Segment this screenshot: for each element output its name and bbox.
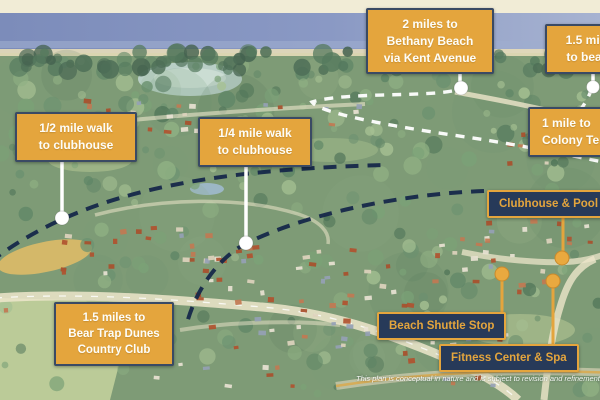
house <box>435 253 440 258</box>
tree <box>299 78 308 87</box>
tree <box>9 189 16 196</box>
house <box>491 258 496 263</box>
house <box>317 250 322 254</box>
house <box>321 279 325 284</box>
house <box>154 376 160 380</box>
tree <box>420 301 429 310</box>
house <box>268 297 274 302</box>
house <box>4 308 9 313</box>
tree <box>426 228 438 240</box>
house <box>530 219 537 224</box>
house <box>365 331 370 336</box>
tree <box>436 73 451 88</box>
house <box>179 233 184 238</box>
house <box>452 251 457 255</box>
tree <box>531 164 543 176</box>
house <box>341 336 348 341</box>
house <box>353 110 359 115</box>
house <box>347 294 354 298</box>
house <box>346 324 353 329</box>
house <box>120 229 127 235</box>
house <box>84 241 91 244</box>
tree <box>72 162 79 169</box>
tree <box>197 310 209 322</box>
house <box>343 272 348 276</box>
tree <box>246 46 257 57</box>
tree <box>519 87 530 98</box>
tree <box>510 124 517 131</box>
tree <box>46 55 56 65</box>
tree <box>402 239 415 252</box>
tree <box>494 49 504 59</box>
house <box>557 221 562 226</box>
house <box>84 99 92 104</box>
tree <box>349 134 359 144</box>
house <box>185 121 192 126</box>
tree <box>75 55 93 73</box>
tree <box>314 140 324 150</box>
tree <box>100 60 119 79</box>
house <box>178 363 183 367</box>
tree <box>419 293 428 302</box>
house <box>208 256 215 261</box>
house <box>183 257 190 262</box>
house <box>299 299 304 303</box>
tree <box>516 319 528 331</box>
tree <box>170 251 179 260</box>
tree <box>288 346 302 360</box>
tree <box>294 59 311 76</box>
house <box>176 227 183 231</box>
house <box>234 346 239 350</box>
house <box>364 327 369 331</box>
house <box>209 279 214 282</box>
pin-dot-bethany <box>454 81 468 95</box>
house <box>241 259 246 264</box>
house <box>278 105 283 109</box>
house <box>103 271 107 275</box>
house <box>302 335 308 339</box>
tree <box>254 255 264 265</box>
tree <box>535 316 541 322</box>
tree <box>282 180 297 195</box>
house <box>403 351 408 356</box>
tree <box>404 157 422 175</box>
tree <box>461 151 477 167</box>
tree <box>132 257 145 270</box>
house <box>205 233 212 238</box>
house <box>151 226 157 230</box>
sky <box>0 0 600 15</box>
house <box>148 127 153 131</box>
house <box>522 227 527 232</box>
tree <box>422 107 435 120</box>
pin-dot-beach <box>587 81 600 94</box>
tree <box>103 176 118 191</box>
house <box>567 237 572 242</box>
tree <box>334 153 345 164</box>
house <box>341 343 346 347</box>
house <box>252 245 259 250</box>
tree <box>315 76 322 83</box>
house <box>190 258 195 262</box>
tree <box>132 45 147 60</box>
tree <box>260 46 272 58</box>
house <box>331 322 336 326</box>
house <box>182 113 187 116</box>
tree <box>370 124 383 137</box>
house <box>258 331 266 336</box>
house <box>330 303 336 308</box>
tree <box>450 273 466 289</box>
label-quarter-mile-walk: 1/4 mile walk to clubhouse <box>198 117 312 167</box>
house <box>356 104 362 109</box>
house <box>545 161 549 164</box>
house <box>324 276 330 280</box>
watercolor-blob <box>323 175 399 251</box>
label-fitness-spa: Fitness Center & Spa <box>439 344 579 372</box>
tree <box>443 237 457 251</box>
house <box>313 314 319 318</box>
tree <box>210 166 217 173</box>
tree <box>254 70 262 78</box>
tree <box>439 295 447 303</box>
house <box>490 384 495 388</box>
tree <box>98 275 111 288</box>
house <box>136 229 142 234</box>
tree <box>381 74 389 82</box>
tree <box>444 269 450 275</box>
house <box>473 280 480 284</box>
tree <box>78 91 86 99</box>
tree <box>120 256 132 268</box>
tree <box>323 215 335 227</box>
tree <box>491 128 497 134</box>
tree <box>306 354 323 371</box>
tree <box>202 201 219 218</box>
tree <box>154 148 165 159</box>
label-colony-tennis-distance: 1 mile to Colony Tennis <box>528 107 600 157</box>
tree <box>80 238 94 252</box>
house <box>203 366 210 370</box>
house <box>262 365 268 370</box>
house <box>109 264 115 269</box>
tree <box>231 253 239 261</box>
tree <box>118 96 134 112</box>
house <box>386 264 391 269</box>
house <box>287 340 295 346</box>
tree <box>236 90 249 103</box>
tree <box>84 176 93 185</box>
tree <box>343 47 353 57</box>
tree <box>373 166 389 182</box>
house <box>189 104 196 109</box>
house <box>191 252 196 257</box>
house <box>430 341 434 345</box>
pin-dot-half-mile <box>55 211 69 225</box>
tree <box>319 254 333 268</box>
tree <box>338 75 351 88</box>
tree <box>389 74 404 89</box>
house <box>540 269 545 274</box>
label-beach-shuttle: Beach Shuttle Stop <box>377 312 506 340</box>
house <box>209 325 217 330</box>
tree <box>233 63 246 76</box>
house <box>62 269 66 274</box>
house <box>290 384 294 388</box>
tree <box>558 157 569 168</box>
house <box>228 286 232 291</box>
tree <box>30 180 39 189</box>
house <box>247 253 253 258</box>
tree <box>118 62 132 76</box>
house <box>260 290 265 296</box>
tree <box>346 191 359 204</box>
tree <box>401 291 414 304</box>
tree <box>300 384 306 390</box>
house <box>379 284 386 289</box>
house <box>584 224 589 228</box>
tree <box>141 81 152 92</box>
tree <box>222 335 236 349</box>
house <box>296 325 301 329</box>
house <box>489 230 495 234</box>
house <box>181 127 189 132</box>
tree <box>199 348 215 364</box>
tree <box>132 58 151 77</box>
tree <box>16 344 26 354</box>
label-clubhouse-pool: Clubhouse & Pool <box>487 190 600 218</box>
tree <box>155 76 171 92</box>
tree <box>368 249 384 265</box>
house <box>269 329 274 333</box>
house <box>546 238 552 243</box>
house <box>342 301 348 306</box>
house <box>263 103 268 107</box>
tree <box>66 60 74 68</box>
tree <box>365 357 377 369</box>
tree <box>33 54 46 67</box>
house <box>190 243 195 248</box>
house <box>483 250 489 255</box>
tree <box>394 228 405 239</box>
tree <box>451 204 463 216</box>
house <box>137 101 142 105</box>
tree <box>265 88 279 102</box>
tree <box>533 63 543 73</box>
tree <box>214 76 221 83</box>
house <box>364 296 372 301</box>
tree <box>154 231 167 244</box>
house <box>510 254 515 257</box>
tree <box>164 122 179 137</box>
house <box>87 104 92 110</box>
house <box>349 248 356 252</box>
label-bethany-beach-distance: 2 miles to Bethany Beach via Kent Avenue <box>366 8 494 74</box>
house <box>485 239 490 243</box>
label-bear-trap-distance: 1.5 miles to Bear Trap Dunes Country Clu… <box>54 302 174 366</box>
house <box>521 132 525 137</box>
tree <box>157 161 176 180</box>
disclaimer-text: This plan is conceptual in nature and is… <box>356 374 600 383</box>
house <box>203 269 209 274</box>
tree <box>398 130 406 138</box>
house <box>216 258 220 261</box>
house <box>275 365 280 370</box>
pin-dot-quarter-mile <box>239 236 253 250</box>
tree <box>217 82 226 91</box>
tree <box>322 52 342 72</box>
tree <box>188 57 203 72</box>
tree <box>483 110 490 117</box>
tree <box>218 91 235 108</box>
house <box>507 161 513 166</box>
tree <box>314 390 322 398</box>
house <box>217 278 223 282</box>
house <box>588 241 593 244</box>
tree <box>364 344 378 358</box>
amenity-dot-fitness <box>546 274 560 288</box>
tree <box>570 250 579 259</box>
house <box>167 114 174 118</box>
tree <box>201 49 218 66</box>
tree <box>151 60 165 74</box>
tree <box>399 269 406 276</box>
house <box>343 318 351 323</box>
house <box>364 270 371 274</box>
house <box>462 267 468 272</box>
tree <box>53 75 62 84</box>
amenity-dot-shuttle <box>495 267 509 281</box>
tree <box>131 91 139 99</box>
label-half-mile-walk: 1/2 mile walk to clubhouse <box>15 112 137 162</box>
house <box>62 240 68 245</box>
house <box>517 290 522 295</box>
house <box>519 283 526 288</box>
tree <box>551 159 558 166</box>
house <box>164 130 172 134</box>
tree <box>572 218 581 227</box>
tree <box>375 138 385 148</box>
tree <box>49 376 64 391</box>
house <box>301 309 308 313</box>
house <box>65 234 73 239</box>
tree <box>505 89 513 97</box>
house <box>329 261 335 265</box>
tree <box>142 146 149 153</box>
tree <box>22 53 34 65</box>
amenity-dot-clubhouse <box>555 251 569 265</box>
house <box>408 358 415 364</box>
house <box>176 104 181 108</box>
tree <box>582 333 592 343</box>
tree <box>19 207 33 221</box>
house <box>432 279 438 283</box>
tree <box>116 74 134 92</box>
tree <box>95 223 109 237</box>
tree <box>562 265 572 275</box>
house <box>113 239 117 244</box>
house <box>235 299 242 305</box>
house <box>402 304 408 308</box>
tree <box>331 126 337 132</box>
house <box>471 256 478 261</box>
tree <box>362 209 378 225</box>
ocean-highlight <box>0 41 600 48</box>
house <box>489 264 493 269</box>
tree <box>16 170 25 179</box>
tree <box>2 362 9 369</box>
tree <box>497 81 505 89</box>
house <box>460 237 465 241</box>
house <box>391 290 397 295</box>
house <box>90 252 94 256</box>
label-beach-distance: 1.5 miles to beach <box>545 24 600 74</box>
house <box>266 373 273 377</box>
house <box>486 221 492 226</box>
house <box>255 317 262 322</box>
